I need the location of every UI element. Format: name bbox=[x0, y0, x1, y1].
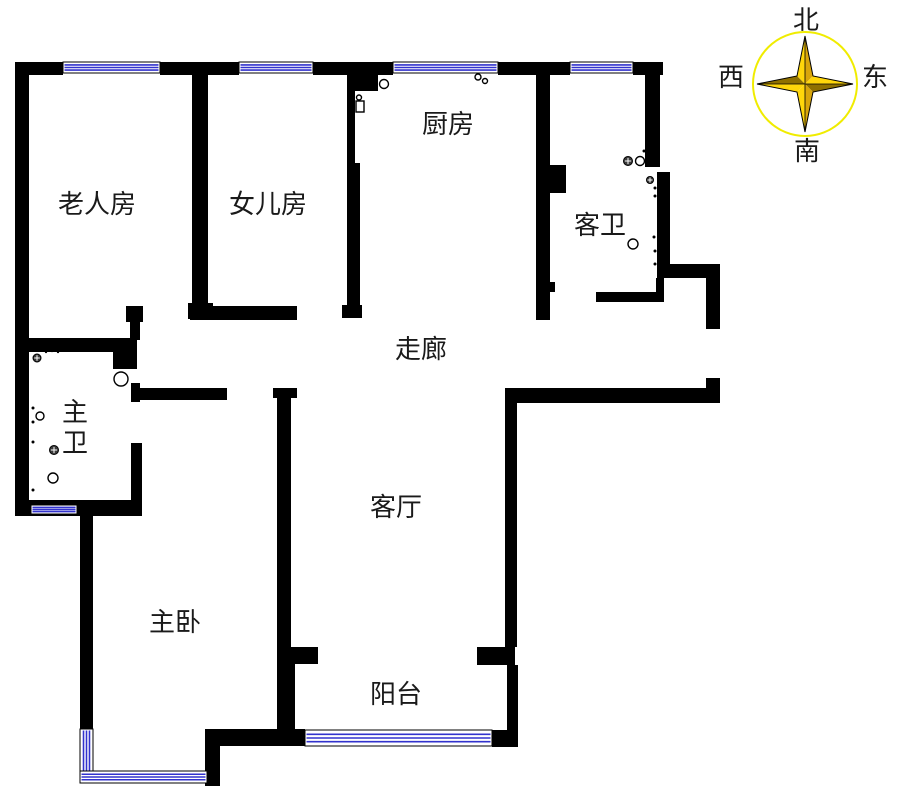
fixture-valve-icon bbox=[50, 446, 59, 455]
fixture-circle-icon bbox=[475, 74, 481, 80]
wall-segment bbox=[347, 75, 378, 91]
wall-segment bbox=[536, 73, 550, 320]
window bbox=[31, 505, 77, 514]
wall-segment bbox=[113, 352, 137, 369]
fixture-box-icon bbox=[356, 101, 364, 112]
wall-segment bbox=[277, 396, 291, 647]
wall-segment bbox=[190, 306, 297, 320]
wall-segment bbox=[126, 306, 143, 322]
room-label-living-room: 客厅 bbox=[370, 493, 422, 523]
wall-segment bbox=[596, 292, 663, 302]
fixture-dot-icon bbox=[654, 263, 657, 266]
fixture-dot-icon bbox=[32, 407, 35, 410]
window bbox=[80, 729, 93, 777]
window bbox=[393, 62, 498, 73]
fixture-circle-icon bbox=[628, 239, 638, 249]
compass-label-west: 西 bbox=[718, 63, 744, 93]
fixture-valve-icon bbox=[624, 157, 633, 166]
wall-segment bbox=[205, 729, 305, 746]
fixture-valve-icon bbox=[33, 354, 41, 362]
fixture-dot-icon bbox=[653, 236, 656, 239]
room-label-daughter-room: 女儿房 bbox=[229, 190, 307, 220]
fixture-dot-icon bbox=[643, 150, 646, 153]
fixture-dot-icon bbox=[32, 441, 35, 444]
room-label-master-bedroom: 主卧 bbox=[149, 608, 201, 638]
wall-segment bbox=[645, 73, 660, 167]
wall-segment bbox=[657, 264, 720, 278]
fixture-dot-icon bbox=[654, 250, 657, 253]
wall-segment bbox=[137, 388, 227, 400]
room-label-balcony: 阳台 bbox=[370, 680, 422, 710]
wall-segment bbox=[657, 172, 670, 264]
fixture-circle-icon bbox=[48, 473, 58, 483]
wall-segment bbox=[15, 62, 29, 516]
fixture-dot-icon bbox=[51, 350, 53, 352]
room-label-corridor: 走廊 bbox=[395, 335, 447, 365]
fixture-circle-icon bbox=[114, 372, 128, 386]
wall-segment bbox=[277, 664, 295, 729]
wall-segment bbox=[549, 165, 566, 193]
window bbox=[80, 771, 207, 783]
wall-segment bbox=[477, 647, 515, 665]
wall-segment bbox=[15, 338, 137, 352]
window bbox=[570, 62, 633, 73]
wall-segment bbox=[706, 378, 720, 388]
wall-segment bbox=[342, 305, 362, 318]
compass-label-north: 北 bbox=[793, 6, 819, 36]
fixture-circle-icon bbox=[357, 95, 362, 100]
fixture-dot-icon bbox=[32, 489, 35, 492]
fixture-dot-icon bbox=[654, 195, 657, 198]
wall-segment bbox=[505, 388, 720, 403]
room-label-kitchen: 厨房 bbox=[422, 110, 474, 140]
fixture-circle-icon bbox=[36, 412, 44, 420]
wall-segment bbox=[347, 163, 360, 305]
window bbox=[63, 62, 160, 73]
wall-segment bbox=[505, 403, 517, 647]
fixture-dot-icon bbox=[57, 351, 59, 353]
fixture-dot-icon bbox=[654, 187, 657, 190]
room-label-guest-bathroom: 客卫 bbox=[574, 211, 626, 241]
fixture-dot-icon bbox=[32, 421, 35, 424]
walls-layer bbox=[15, 62, 720, 786]
wall-segment bbox=[192, 75, 208, 303]
wall-segment bbox=[498, 62, 570, 75]
wall-segment bbox=[706, 277, 720, 329]
compass-rose: 北 西 东 南 bbox=[718, 6, 888, 167]
fixture-circle-icon bbox=[483, 79, 488, 84]
wall-segment bbox=[313, 62, 393, 75]
wall-segment bbox=[160, 62, 239, 75]
compass-label-south: 南 bbox=[794, 137, 820, 167]
compass-label-east: 东 bbox=[862, 63, 888, 93]
fixture-circle-icon bbox=[380, 80, 389, 89]
floorplan-canvas: 老人房 女儿房 厨房 客卫 走廊 主 卫 客厅 主卧 阳台 北 西 东 南 bbox=[0, 0, 900, 808]
wall-segment bbox=[549, 282, 555, 292]
wall-segment bbox=[347, 91, 355, 163]
wall-segment bbox=[492, 730, 518, 747]
room-label-master-bath-1: 主 bbox=[62, 398, 88, 428]
wall-segment bbox=[80, 516, 93, 729]
wall-segment bbox=[130, 322, 140, 340]
room-label-elder-room: 老人房 bbox=[58, 190, 136, 220]
fixture-dot-icon bbox=[45, 351, 47, 353]
fixture-circle-icon bbox=[636, 157, 645, 166]
floorplan-svg: 老人房 女儿房 厨房 客卫 走廊 主 卫 客厅 主卧 阳台 北 西 东 南 bbox=[0, 0, 900, 808]
window bbox=[239, 62, 313, 73]
room-label-master-bath-2: 卫 bbox=[62, 429, 88, 459]
window bbox=[305, 730, 492, 746]
fixture-valve-icon bbox=[647, 177, 654, 184]
fixtures-layer bbox=[32, 74, 657, 492]
wall-segment bbox=[277, 647, 318, 664]
